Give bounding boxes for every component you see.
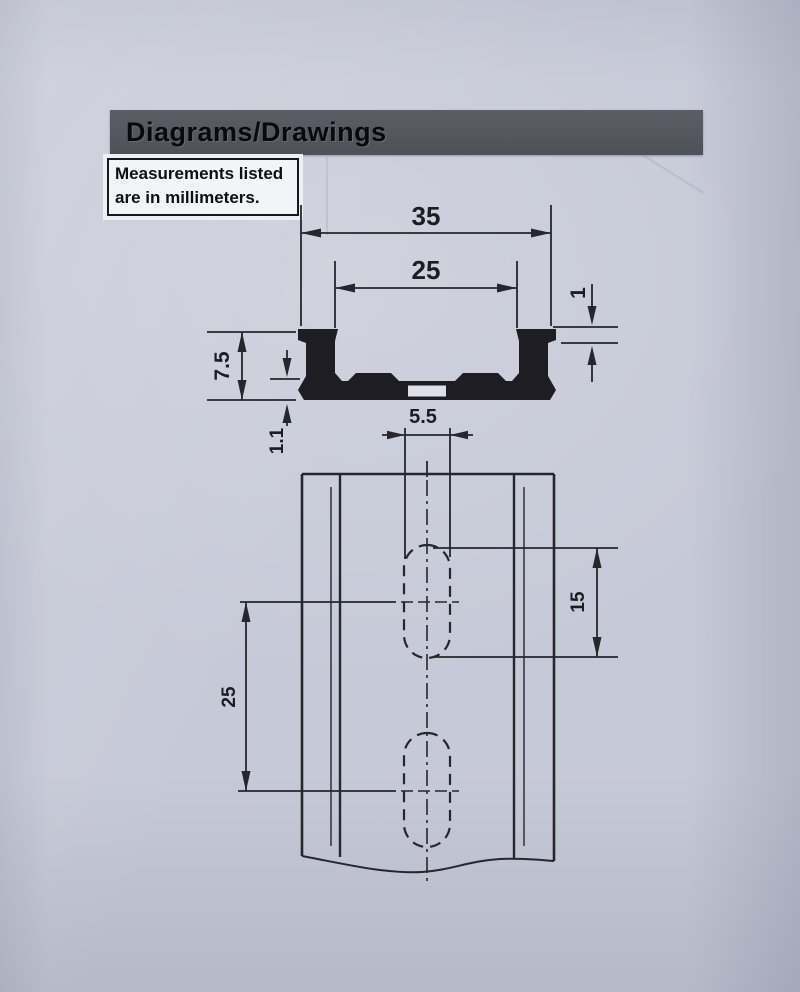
dim-label-slot-width: 5.5 <box>409 406 437 428</box>
dim-label-slot-length: 15 <box>568 591 589 613</box>
arrowhead <box>531 229 551 238</box>
arrowhead <box>450 431 468 439</box>
dim-rail-height: 7.5 <box>207 332 296 400</box>
arrowhead <box>497 284 517 293</box>
break-line <box>302 856 554 872</box>
dim-label-opening-width: 25 <box>412 255 441 285</box>
plan-view: 15 25 <box>219 461 618 886</box>
dim-opening-width: 25 <box>335 255 517 328</box>
arrowhead <box>588 306 597 325</box>
photographed-spec-page: { "page": { "header_title": "Diagrams/Dr… <box>0 0 800 992</box>
arrowhead <box>593 548 602 568</box>
arrowhead <box>593 637 602 657</box>
arrowhead <box>301 229 321 238</box>
dim-slot-length: 15 <box>433 548 618 657</box>
dim-label-lip-thickness: 1 <box>567 287 590 299</box>
arrowhead <box>242 771 251 791</box>
arrowhead <box>242 602 251 622</box>
dim-label-slot-spacing: 25 <box>219 686 240 708</box>
dim-label-base-thickness: 1.1 <box>267 427 288 454</box>
centerlines <box>238 461 459 886</box>
rail-profile-silhouette <box>298 329 556 400</box>
cross-section-view: 35 25 1 7.5 <box>207 201 618 559</box>
dim-lip-thickness: 1 <box>553 284 618 382</box>
arrowhead <box>335 284 355 293</box>
dim-label-rail-height: 7.5 <box>211 351 234 381</box>
din-rail-technical-drawing: 35 25 1 7.5 <box>0 0 800 992</box>
arrowhead <box>283 358 292 377</box>
arrowhead <box>238 380 247 400</box>
dim-slot-spacing: 25 <box>219 602 251 791</box>
dim-label-overall-width: 35 <box>412 201 441 231</box>
arrowhead <box>387 431 405 439</box>
profile-mounting-slot-opening <box>408 386 446 397</box>
arrowhead <box>238 332 247 352</box>
dim-base-thickness: 1.1 <box>267 350 300 454</box>
